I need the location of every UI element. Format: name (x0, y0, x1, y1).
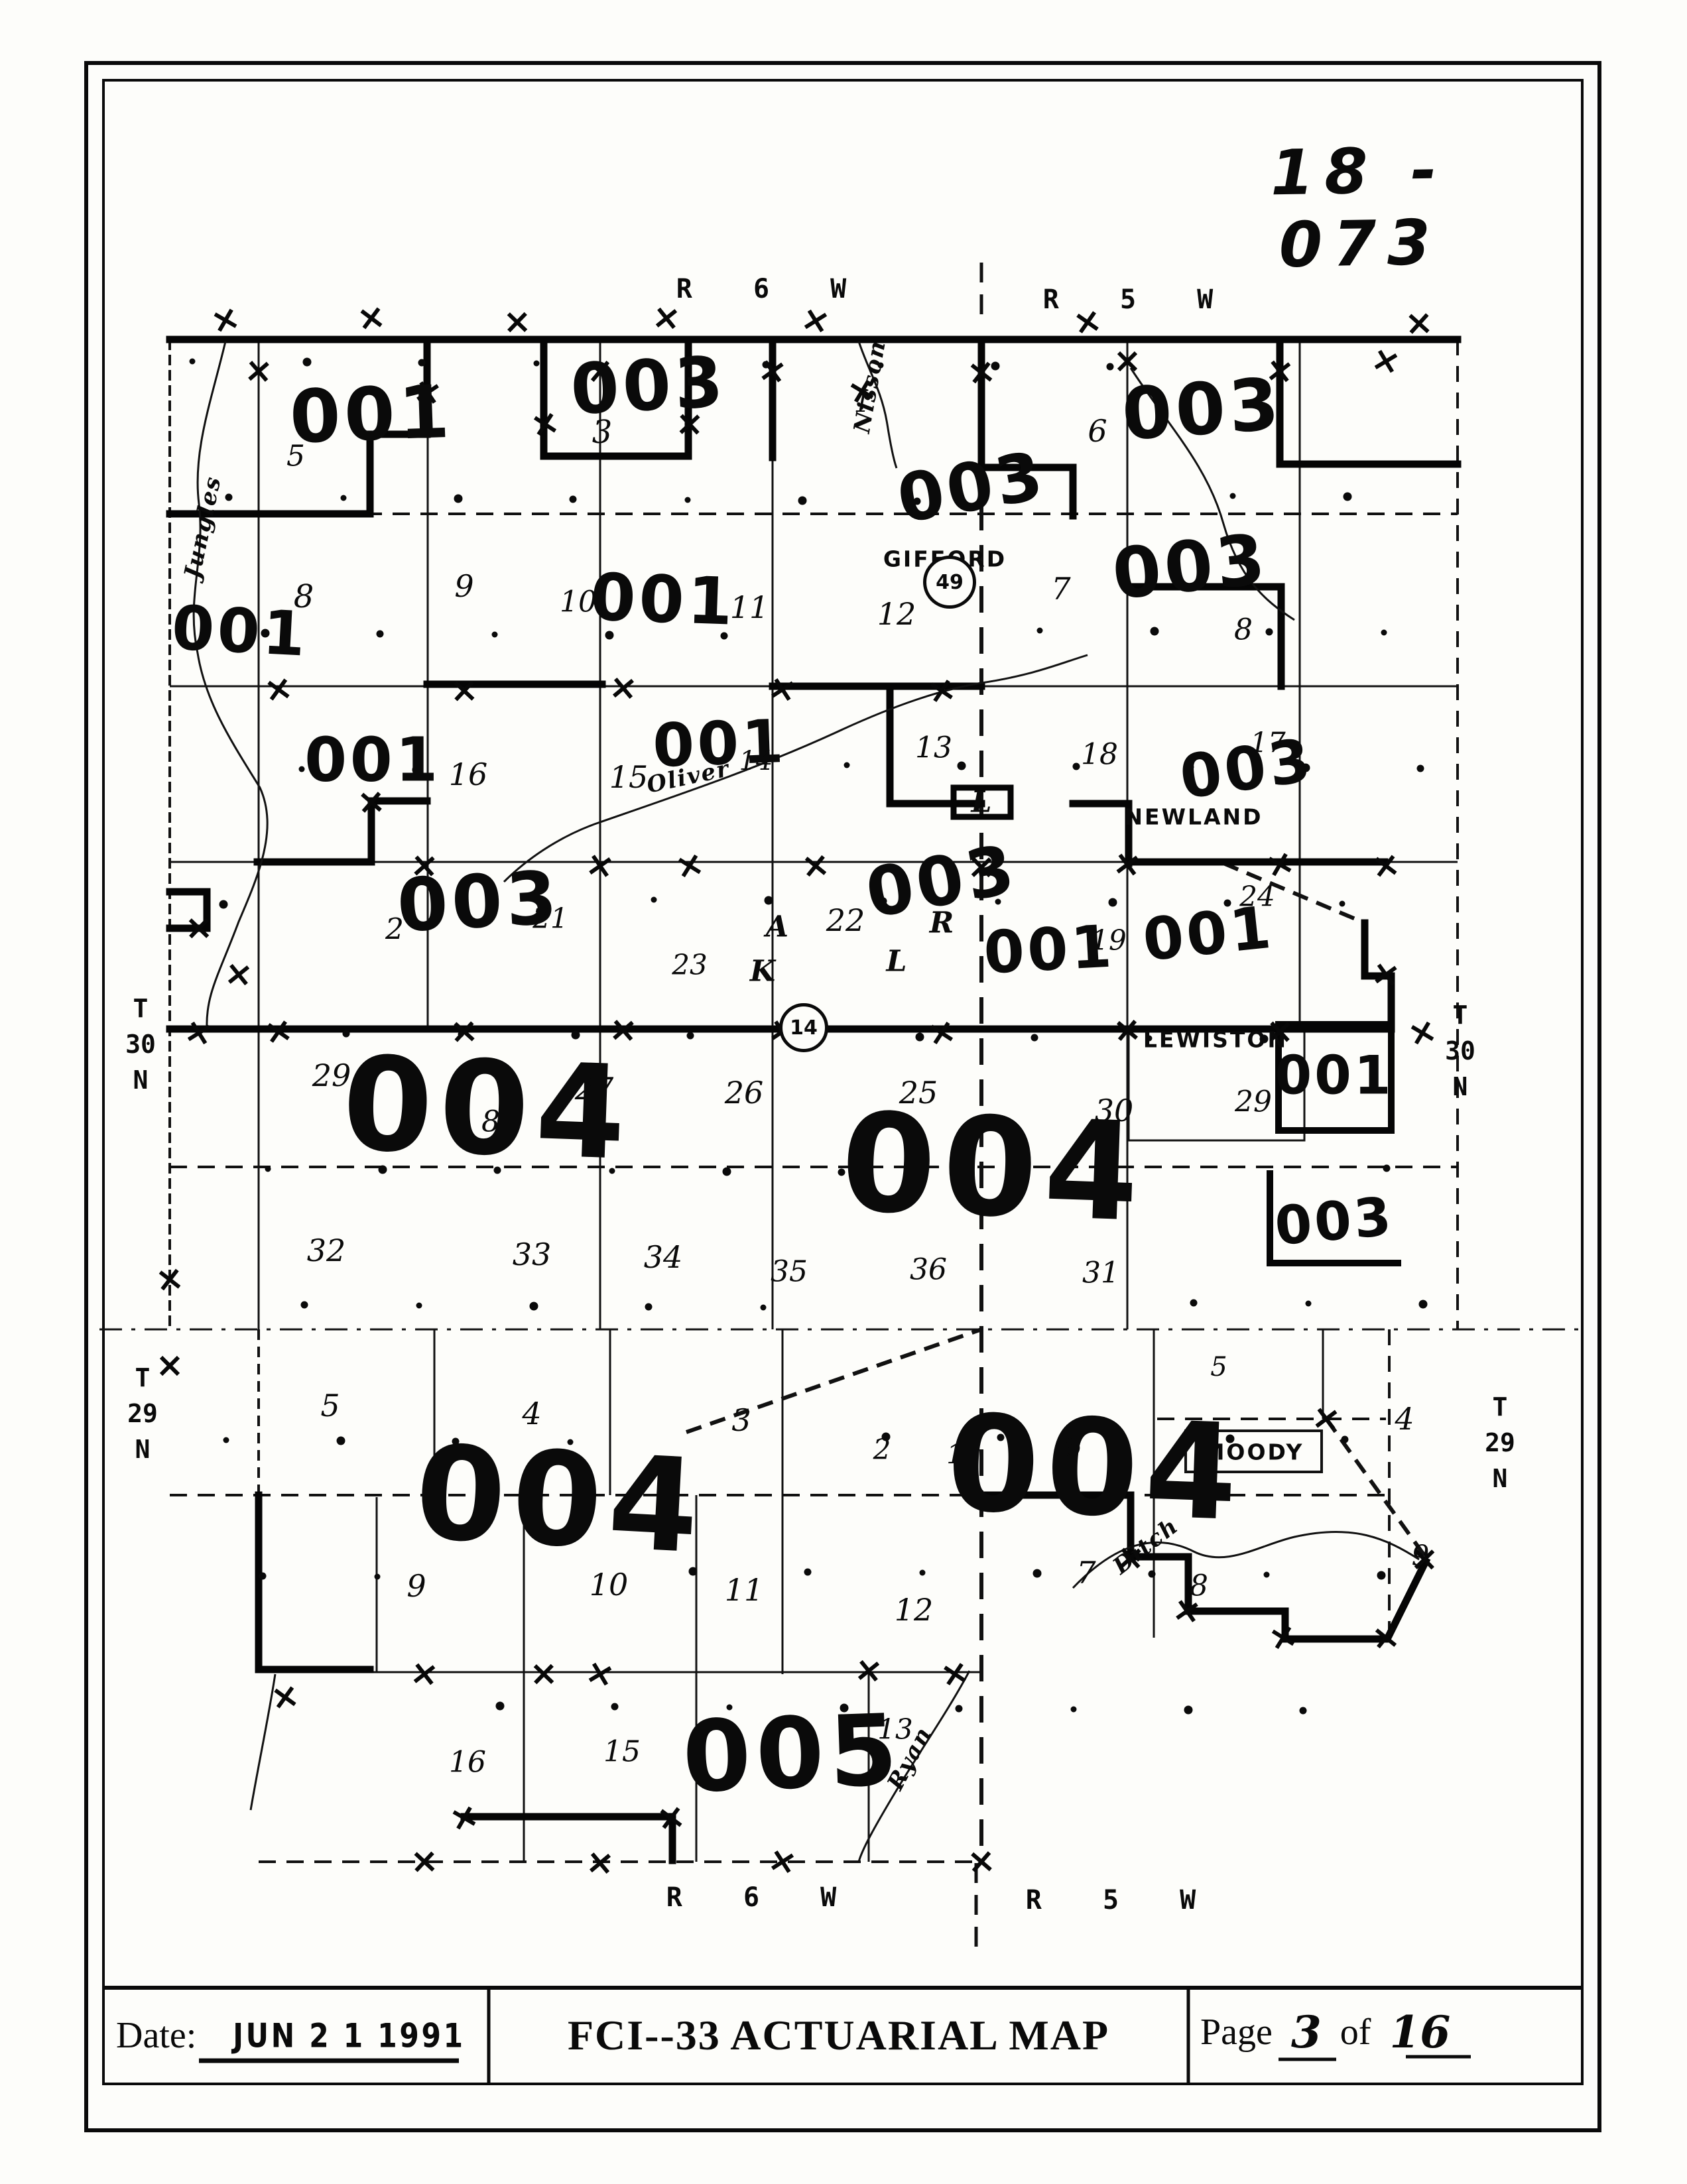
zone-letter: R (930, 906, 954, 940)
township-label-line: 29 (1485, 1430, 1515, 1455)
section-number: 8 (1234, 613, 1253, 647)
section-number: 10 (590, 1567, 629, 1603)
section-number: 6 (1088, 413, 1107, 449)
range-label: R 6 W (666, 1882, 859, 1913)
township-label-line: T (1493, 1394, 1508, 1420)
page-number: 3 (1291, 2006, 1322, 2058)
creek-name-jungles: Jungles (179, 473, 227, 581)
zone-letter: K (750, 955, 775, 989)
section-number: 1 (946, 1439, 963, 1470)
section-number: 15 (603, 1735, 641, 1769)
section-number: 32 (307, 1233, 346, 1268)
township-label: T30N (1445, 1002, 1475, 1099)
section-number: 12 (895, 1592, 934, 1628)
map-labels: R 6 WR 5 WR 6 WR 5 WGIFFORDNEWLANDLEWIST… (0, 0, 1687, 2184)
date-stamp: JUN 2 1 1991 (233, 2016, 466, 2055)
section-number: 13 (915, 731, 952, 765)
zone-stamp-003: 003 (1176, 725, 1318, 813)
section-number: 8 (481, 1105, 500, 1139)
township-label-line: 29 (127, 1401, 158, 1426)
township-label-line: N (1493, 1466, 1508, 1491)
zone-stamp-001: 001 (1275, 1045, 1394, 1107)
map-title: FCI--33 ACTUARIAL MAP (568, 2011, 1109, 2060)
of-label: of (1340, 2011, 1371, 2053)
zone-letter: A (766, 910, 788, 944)
section-number: 5 (286, 440, 305, 473)
zone-stamp-001: 001 (288, 369, 454, 460)
section-number: 29 (312, 1058, 351, 1093)
section-number: 27 (575, 1071, 614, 1107)
range-label: R 5 W (1026, 1885, 1218, 1915)
section-number: 11 (730, 589, 769, 625)
highway-number: 14 (790, 1016, 818, 1040)
footer-title-cell: FCI--33 ACTUARIAL MAP (489, 1992, 1188, 2079)
township-label-line: 30 (125, 1032, 156, 1057)
creek-name-nisson: Nisson (849, 338, 891, 435)
zone-letter: L (971, 786, 992, 819)
township-label-line: 30 (1445, 1038, 1475, 1063)
section-number: 3 (592, 414, 613, 451)
section-number: 25 (899, 1075, 938, 1111)
section-number: 7 (1051, 571, 1070, 607)
section-number: 6 (1064, 1430, 1082, 1464)
section-number: 13 (877, 1713, 912, 1746)
zone-stamp-004: 004 (412, 1417, 709, 1583)
highway-shield: 49 (923, 556, 976, 609)
actuarial-map-page: 18 - 073 R 6 WR 5 WR 6 WR 5 WGIFFORDNEWL… (0, 0, 1687, 2184)
township-label-line: T (1453, 1002, 1468, 1028)
zone-letter: L (887, 945, 907, 979)
zone-stamp-005: 005 (681, 1693, 905, 1814)
section-number: 3 (731, 1402, 751, 1438)
township-label: T30N (125, 996, 156, 1093)
section-number: 9 (1412, 1540, 1430, 1572)
zone-stamp-004: 004 (944, 1386, 1246, 1551)
section-number: 18 (1081, 738, 1118, 772)
section-number: 16 (449, 1746, 486, 1780)
section-number: 9 (454, 568, 473, 604)
date-label: Date: (116, 2014, 196, 2057)
township-label-line: N (1453, 1074, 1468, 1099)
section-number: 23 (672, 949, 707, 981)
section-number: 11 (725, 1572, 764, 1608)
highway-shield: 14 (779, 1003, 828, 1052)
section-number: 22 (826, 902, 865, 938)
town-name-lewiston: LEWISTON (1143, 1027, 1288, 1053)
township-label-line: N (133, 1067, 149, 1093)
section-number: 34 (644, 1239, 683, 1275)
section-number: 15 (609, 759, 649, 795)
zone-stamp-003: 003 (1273, 1185, 1396, 1257)
township-label-line: N (135, 1437, 151, 1462)
zone-stamp-003: 003 (892, 436, 1052, 538)
township-label: T29N (127, 1365, 158, 1462)
section-number: 26 (725, 1075, 764, 1111)
page-label: Page (1200, 2011, 1273, 2053)
section-number: 9 (406, 1568, 426, 1604)
section-number: 33 (513, 1237, 552, 1272)
zone-stamp-001: 001 (589, 560, 737, 640)
section-number: 12 (877, 596, 916, 632)
section-number: 5 (1210, 1352, 1227, 1382)
section-number: 8 (1190, 1569, 1208, 1603)
section-number: 7 (1076, 1555, 1095, 1591)
section-number: 16 (449, 757, 488, 792)
zone-stamp-001: 001 (170, 592, 310, 670)
section-number: 2 (873, 1433, 891, 1466)
footer-date-cell: Date: JUN 2 1 1991 (116, 1992, 475, 2079)
section-number: 19 (1091, 924, 1126, 957)
township-label: T29N (1485, 1394, 1515, 1491)
section-number: 30 (1095, 1093, 1134, 1128)
section-number: 4 (522, 1396, 541, 1431)
highway-number: 49 (936, 571, 964, 594)
range-label: R 5 W (1043, 284, 1235, 315)
section-number: 24 (1239, 880, 1275, 913)
section-number: 17 (1250, 727, 1285, 759)
footer-page-cell: Page 3 of 16 (1200, 1989, 1572, 2075)
zone-stamp-001: 001 (304, 725, 441, 796)
section-number: 21 (532, 902, 568, 935)
range-label: R 6 W (676, 274, 869, 304)
page-total: 16 (1389, 2006, 1450, 2058)
section-number: 8 (294, 578, 314, 615)
section-number: 10 (560, 585, 597, 619)
section-number: 5 (320, 1388, 340, 1424)
township-label-line: T (135, 1365, 151, 1390)
zone-stamp-003: 003 (1119, 363, 1285, 457)
section-number: 35 (771, 1255, 808, 1289)
section-number: 14 (739, 746, 773, 776)
township-label-line: T (133, 996, 149, 1021)
section-number: 31 (1082, 1256, 1119, 1290)
zone-stamp-003: 003 (1109, 518, 1272, 615)
section-number: 29 (1235, 1085, 1272, 1119)
section-number: 1 (854, 389, 870, 418)
section-number: 4 (1395, 1401, 1414, 1437)
section-number: 36 (910, 1253, 947, 1287)
section-number: 2 (385, 913, 404, 947)
